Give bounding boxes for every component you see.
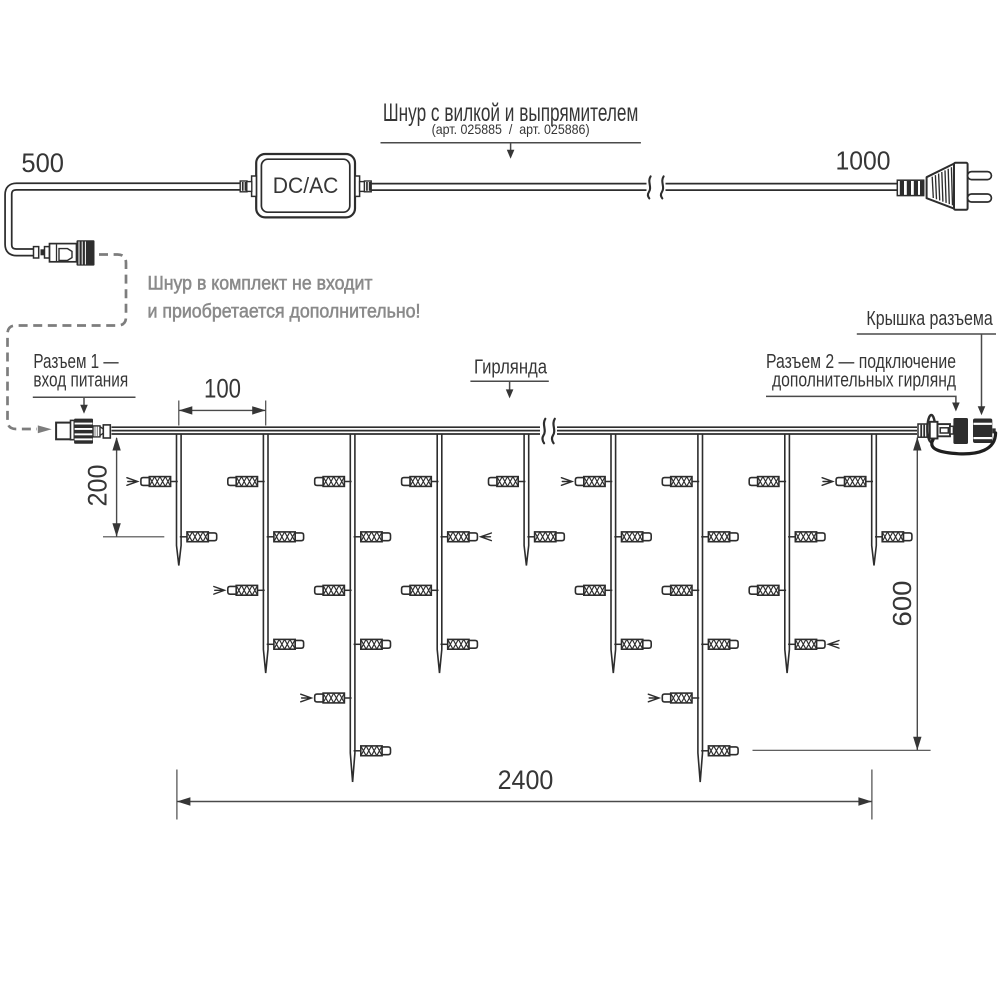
svg-text:(арт. 025885 / арт. 025886): (арт. 025885 / арт. 025886)	[432, 121, 590, 137]
svg-text:Шнур в комплект не входит: Шнур в комплект не входит	[148, 273, 373, 295]
svg-text:2400: 2400	[498, 765, 554, 795]
svg-text:200: 200	[82, 465, 112, 507]
svg-text:и приобретается дополнительно!: и приобретается дополнительно!	[148, 301, 421, 323]
svg-text:вход питания: вход питания	[33, 369, 128, 391]
svg-text:1000: 1000	[836, 146, 891, 176]
svg-text:DC/AC: DC/AC	[273, 173, 339, 198]
svg-text:дополнительных гирлянд: дополнительных гирлянд	[772, 370, 956, 392]
svg-text:Крышка разъема: Крышка разъема	[866, 308, 993, 330]
svg-text:100: 100	[204, 373, 241, 403]
svg-text:Гирлянда: Гирлянда	[474, 357, 548, 379]
svg-text:600: 600	[887, 581, 917, 627]
svg-text:500: 500	[21, 148, 64, 178]
